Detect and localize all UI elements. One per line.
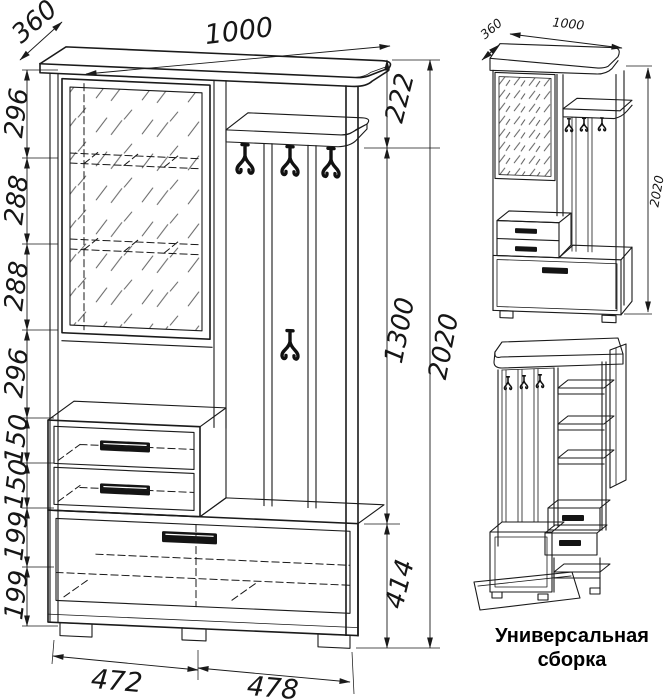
drawer-handle	[559, 540, 581, 546]
foot	[602, 315, 616, 322]
canopy-shelf	[40, 46, 390, 88]
iso-cabinet	[493, 242, 632, 323]
main-front-view: 1000 360 296 288 288 296 150 150 199 199…	[0, 0, 465, 700]
coat-hook-icon	[504, 377, 511, 390]
iso-dim-height: 2020	[646, 174, 665, 208]
iso-drawers	[497, 211, 571, 259]
left-side-panel	[50, 73, 58, 622]
foot	[60, 623, 92, 637]
uni-open-drawers	[545, 500, 610, 555]
assembled-iso-view: 360 1000 2020	[477, 14, 665, 323]
drawer-handle	[515, 246, 537, 252]
uni-shelf-column	[554, 362, 614, 530]
dim-left-0: 296	[0, 87, 35, 140]
door-handle	[162, 531, 217, 544]
uni-hook-rail	[502, 368, 554, 370]
dim-left-4: 150	[0, 413, 35, 466]
coat-hook-icon	[323, 148, 339, 177]
dim-left-3: 296	[0, 347, 35, 400]
bottom-cabinet	[48, 490, 384, 650]
dim-right-414: 414	[380, 556, 421, 611]
dim-total-height: 2020	[423, 311, 465, 382]
dim-left-7: 199	[0, 569, 35, 622]
uni-lower-column	[554, 558, 610, 592]
universal-iso-view	[474, 338, 626, 610]
coat-hook-icon	[282, 330, 298, 359]
foot	[500, 311, 513, 318]
dim-bottom-right: 478	[246, 671, 300, 700]
dim-left-1: 288	[0, 174, 35, 227]
iso-canopy	[490, 43, 619, 75]
hook-boards	[264, 144, 316, 508]
caption-line-1: Универсальная	[495, 625, 649, 647]
uni-hook-boards	[502, 369, 538, 522]
mirror-panel	[62, 79, 212, 348]
drawer-unit	[48, 400, 226, 518]
coat-hook-icon	[282, 146, 298, 175]
coat-hook-icon	[536, 375, 543, 388]
drawer-handle	[515, 228, 537, 234]
dim-right-222: 222	[380, 70, 421, 125]
dim-left-6: 199	[0, 510, 35, 563]
iso-dim-depth: 360	[477, 15, 505, 42]
coat-hook-icon	[565, 119, 572, 132]
iso-mirror	[495, 72, 555, 180]
foot	[182, 628, 206, 641]
coat-hook-icon	[520, 376, 527, 389]
dim-left-5: 150	[0, 458, 35, 511]
iso-hook-boards	[572, 117, 592, 252]
dim-bottom-left: 472	[90, 664, 144, 699]
dim-left-2: 288	[0, 260, 35, 313]
right-side-panel	[346, 86, 358, 636]
iso-dim-width: 1000	[552, 14, 585, 32]
hook-section-shelf	[226, 112, 369, 148]
dim-depth: 360	[6, 0, 63, 50]
dim-right-1300: 1300	[379, 295, 421, 366]
foot	[492, 592, 502, 598]
foot	[590, 588, 600, 594]
dim-width-top: 1000	[203, 12, 275, 51]
caption-line-2: сборка	[538, 649, 608, 671]
coat-hook-icon	[580, 118, 587, 131]
foot	[538, 594, 548, 600]
iso-post	[557, 75, 563, 216]
uni-canopy	[494, 338, 623, 368]
coat-hook-icon	[237, 144, 253, 173]
middle-post	[214, 80, 226, 428]
door-handle	[542, 267, 568, 274]
coat-hook-icon	[598, 118, 605, 131]
iso-shelf	[563, 98, 632, 119]
furniture-technical-drawing: 1000 360 296 288 288 296 150 150 199 199…	[0, 0, 665, 700]
drawer-handle	[562, 515, 584, 521]
foot	[318, 634, 350, 648]
